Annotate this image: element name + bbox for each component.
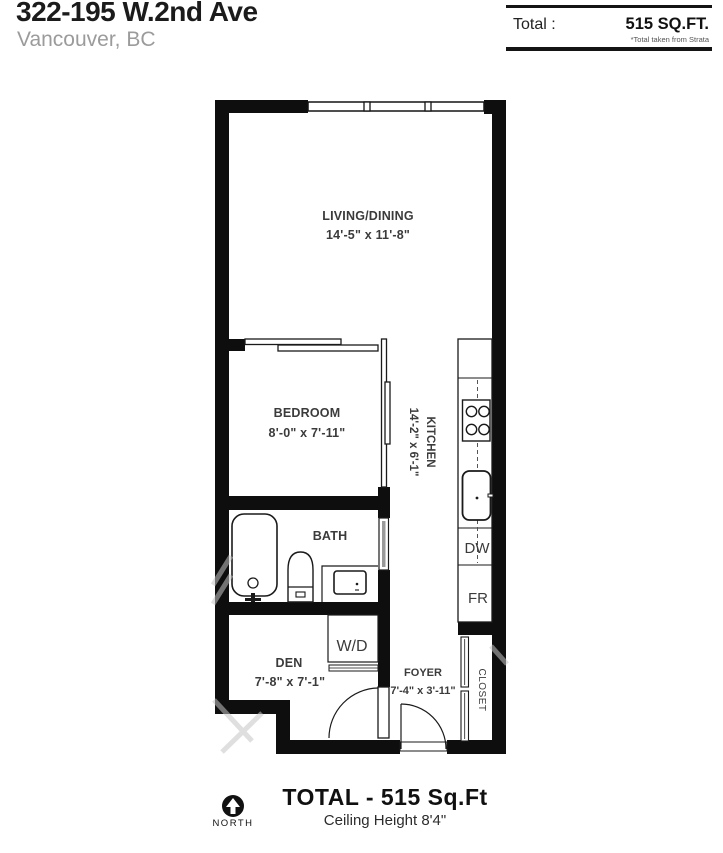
bathtub-icon <box>232 514 277 602</box>
fridge-label: FR <box>468 590 488 607</box>
den-dims: 7'-8" x 7'-1" <box>255 675 325 689</box>
den-door <box>329 687 389 738</box>
kitchen-dims: 14'-2" x 6'-1" <box>407 408 419 477</box>
kitchen-label: KITCHEN <box>424 416 436 467</box>
entry-door <box>400 704 447 751</box>
wd-label: W/D <box>336 638 367 655</box>
living-label: LIVING/DINING <box>322 209 414 223</box>
floor-plan: DW FR <box>0 0 723 853</box>
bath-label: BATH <box>313 529 348 543</box>
foyer-label: FOYER <box>404 667 442 679</box>
wall-bedroom-top-stub <box>229 339 245 351</box>
bathroom-fixtures <box>232 514 378 602</box>
bath-pocket-door <box>379 518 389 570</box>
foyer-dims: 7'-4" x 3'-11" <box>390 685 455 697</box>
closet-label: CLOSET <box>476 668 487 711</box>
wall-bath-den <box>215 602 390 615</box>
footer-total: TOTAL - 515 Sq.Ft <box>180 784 590 811</box>
wall-left <box>215 100 229 714</box>
window-mullion <box>364 102 370 111</box>
footer-ceiling-height: Ceiling Height 8'4" <box>180 812 590 829</box>
kitchen-counter <box>458 339 493 622</box>
wall-kitchen-bottom <box>458 622 506 635</box>
den-label: DEN <box>276 656 303 670</box>
living-dims: 14'-5" x 11'-8" <box>326 228 410 242</box>
toilet-icon <box>288 552 313 602</box>
wall-bath-right-top <box>378 510 390 518</box>
sliding-panel-top-1 <box>245 339 341 345</box>
vanity-sink-icon <box>322 566 378 602</box>
window-mullion <box>425 102 431 111</box>
bedroom-dims: 8'-0" x 7'-11" <box>269 426 346 440</box>
sliding-panel-top-2 <box>278 345 378 351</box>
wall-bottom-right <box>447 740 506 754</box>
stove-icon <box>463 400 491 441</box>
window-top <box>308 102 484 111</box>
dishwasher-label: DW <box>465 540 491 557</box>
wall-den-foyer <box>378 615 390 687</box>
wall-bath-right-bottom <box>378 570 390 615</box>
wall-bedroom-right-bottom <box>378 487 390 510</box>
wall-top-right <box>484 100 506 114</box>
closet-sliding-doors <box>461 637 469 741</box>
wall-bedroom-bath <box>215 496 390 510</box>
bedroom-label: BEDROOM <box>274 406 341 420</box>
wall-bottom-left <box>276 740 400 754</box>
kitchen-sink-icon <box>463 471 494 520</box>
sliding-panel-right <box>385 382 390 444</box>
floorplan-page: 322-195 W.2nd Ave Vancouver, BC Total : … <box>0 0 723 853</box>
